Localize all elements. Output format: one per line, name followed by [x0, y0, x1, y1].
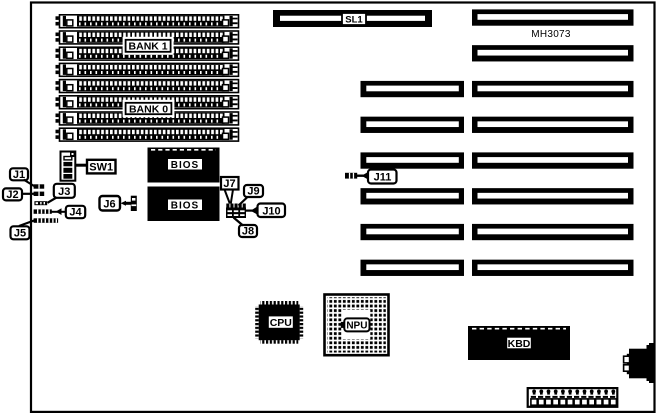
svg-text:BANK 1: BANK 1 — [129, 41, 168, 53]
svg-text:NPU: NPU — [346, 321, 367, 332]
svg-text:J1: J1 — [13, 169, 25, 181]
svg-text:BIOS: BIOS — [171, 201, 199, 212]
svg-text:J10: J10 — [262, 205, 280, 217]
svg-text:KBD: KBD — [508, 338, 531, 350]
svg-text:BANK 0: BANK 0 — [129, 103, 168, 115]
svg-text:J9: J9 — [247, 186, 259, 198]
svg-text:J6: J6 — [103, 199, 115, 211]
svg-text:J5: J5 — [14, 228, 26, 240]
svg-text:J8: J8 — [242, 226, 254, 238]
svg-text:SW1: SW1 — [89, 162, 113, 174]
svg-text:J3: J3 — [58, 186, 70, 198]
svg-text:J2: J2 — [6, 189, 18, 201]
svg-text:MH3073: MH3073 — [531, 29, 571, 40]
svg-text:J7: J7 — [223, 178, 235, 190]
svg-text:BIOS: BIOS — [171, 160, 199, 171]
svg-text:J11: J11 — [374, 172, 392, 184]
svg-text:J4: J4 — [69, 207, 82, 219]
svg-text:CPU: CPU — [270, 317, 292, 329]
svg-text:SL1: SL1 — [345, 15, 363, 26]
